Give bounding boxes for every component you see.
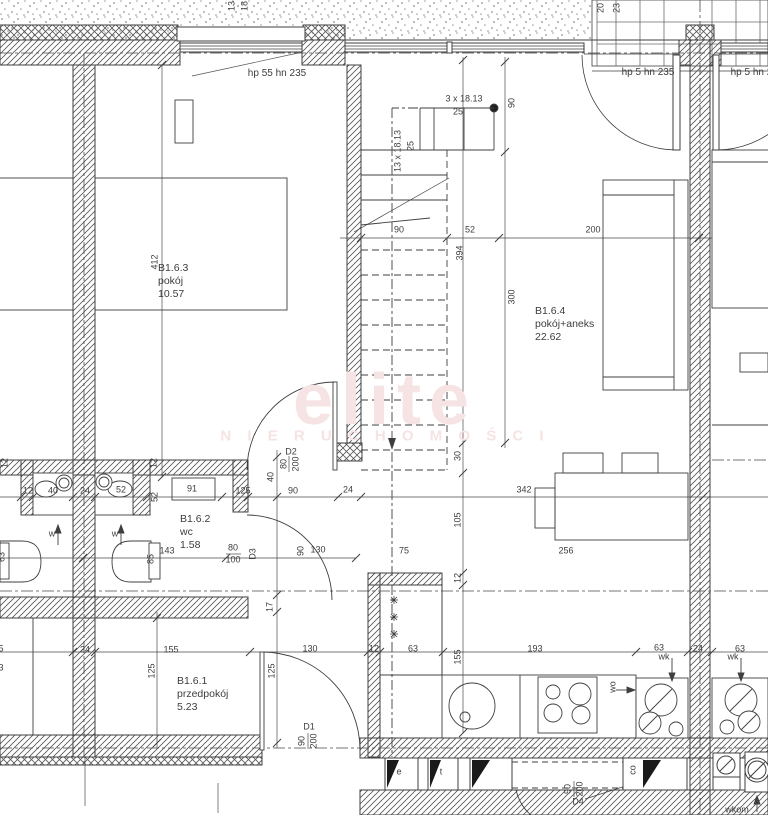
stair-tread-label: 25: [407, 141, 416, 151]
door-label-d1: D1: [303, 723, 315, 732]
door-height-d4: 200: [576, 781, 585, 796]
door-label-d2: D2: [285, 448, 297, 457]
dim-label: 412: [151, 254, 160, 269]
dim-label: 125: [148, 663, 157, 678]
window-label: hp 5 hn 235: [731, 68, 768, 78]
vent-label: wk: [659, 653, 670, 662]
vent-label: wkom: [725, 806, 749, 815]
dim-label: 91: [187, 485, 197, 494]
room-area: 22.62: [535, 331, 594, 344]
dim-label: 20: [597, 3, 606, 13]
door-height-d2: 200: [292, 456, 301, 471]
stair-flight-label: 13 x 18.13: [394, 130, 403, 172]
room-label-b161: B1.6.1 przedpokój 5.23: [177, 675, 228, 714]
room-label-b163: B1.6.3 pokój 10.57: [158, 262, 188, 301]
door-width-d3: 80: [228, 544, 238, 553]
stair-flight-label: 3 x 18.13: [445, 95, 482, 104]
room-area: 1.58: [180, 539, 210, 552]
dim-label: 85: [147, 554, 156, 564]
room-name: pokój+aneks: [535, 318, 594, 331]
vent-label: wk: [728, 653, 739, 662]
room-name: wc: [180, 526, 210, 539]
washer-label: w: [49, 530, 56, 539]
dim-label: 90: [394, 226, 404, 235]
dim-label: 24: [80, 487, 90, 496]
dim-label: 12: [454, 573, 463, 583]
vent-label: wo: [609, 681, 618, 693]
dim-label: 52: [151, 492, 160, 502]
door-height-d1: 200: [310, 733, 319, 748]
door-width-d4: 90: [564, 784, 573, 794]
dim-label: 125: [268, 663, 277, 678]
dim-label: 155: [454, 649, 463, 664]
dim-label: 24: [343, 486, 353, 495]
dim-label: 40: [48, 487, 58, 496]
dim-label: 30: [454, 451, 463, 461]
dim-label: 193: [527, 645, 542, 654]
dim-label: 3: [0, 664, 4, 673]
bedroom-furniture: [0, 100, 287, 310]
shaft-label: t: [440, 768, 443, 777]
room-label-b164: B1.6.4 pokój+aneks 22.62: [535, 305, 594, 344]
dim-label: 12: [150, 458, 159, 468]
door-label-d3: D3: [249, 548, 258, 560]
washer-label: w: [112, 530, 119, 539]
room-area: 5.23: [177, 701, 228, 714]
dim-label: 125: [235, 487, 250, 496]
dim-label: 24: [693, 645, 703, 654]
living-furniture: [535, 150, 768, 540]
window-label: hp 55 hn 235: [248, 69, 306, 79]
door-height-d3: 100: [225, 556, 240, 565]
dim-label: 394: [456, 245, 465, 260]
dim-label: 13: [228, 1, 237, 11]
dim-label: 105: [454, 512, 463, 527]
dim-label: 90: [508, 98, 517, 108]
dim-label: 200: [585, 226, 600, 235]
room-id: B1.6.2: [180, 513, 210, 526]
dim-label: 18: [241, 1, 250, 11]
dim-label: 90: [288, 487, 298, 496]
dim-label: 90: [297, 546, 306, 556]
dim-label: 75: [399, 547, 409, 556]
shaft-label: co: [629, 765, 638, 775]
stair-tread-label: 25: [453, 108, 463, 117]
shaft-label: e: [396, 768, 401, 777]
room-name: pokój: [158, 275, 188, 288]
dim-label: 23: [613, 3, 622, 13]
dim-label: 12: [1, 458, 10, 468]
window-label: hp 5 hn 235: [622, 68, 675, 78]
dim-label: 155: [163, 646, 178, 655]
dim-label: 63: [0, 552, 7, 562]
dim-label: 12: [23, 487, 33, 496]
dim-label: 52: [465, 226, 475, 235]
dim-label: 24: [80, 646, 90, 655]
room-id: B1.6.4: [535, 305, 594, 318]
room-name: przedpokój: [177, 688, 228, 701]
dim-label: 143: [159, 547, 174, 556]
room-label-b162: B1.6.2 wc 1.58: [180, 513, 210, 552]
dim-label: 256: [558, 547, 573, 556]
dim-label: 300: [508, 289, 517, 304]
dim-label: 130: [302, 645, 317, 654]
watermark-subtitle: N I E R U C H O M O Ś C I: [220, 428, 549, 445]
room-id: B1.6.3: [158, 262, 188, 275]
dim-label: 130: [310, 546, 325, 555]
kitchen-fixtures: [380, 585, 636, 738]
dim-label: 52: [116, 486, 126, 495]
dim-label: 342: [516, 486, 531, 495]
dim-label: 12: [369, 645, 379, 654]
room-area: 10.57: [158, 288, 188, 301]
dim-label: 17: [266, 602, 275, 612]
door-label-d4: D4: [572, 798, 584, 807]
room-id: B1.6.1: [177, 675, 228, 688]
floor-plan: elite N I E R U C H O M O Ś C I B1.6.3 p…: [0, 0, 768, 815]
dim-label: 63: [408, 645, 418, 654]
door-width-d1: 90: [298, 736, 307, 746]
door-width-d2: 80: [280, 459, 289, 469]
dim-label: 412: [0, 247, 1, 262]
dim-label: 40: [267, 472, 276, 482]
dim-label: 5: [0, 645, 4, 654]
